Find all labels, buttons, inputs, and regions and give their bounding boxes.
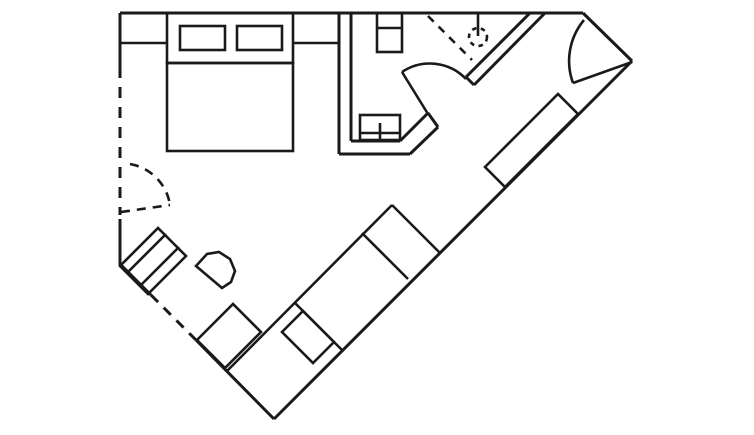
bathroom-door-leaf	[402, 72, 428, 114]
shower-partition-dashed	[428, 16, 472, 60]
closet-door-leaf-dashed	[121, 205, 170, 212]
corridor-wall-end-cap	[466, 77, 474, 85]
pillow-left	[180, 26, 225, 50]
floor-plan-canvas	[0, 0, 754, 435]
sideboard-divider-2	[362, 233, 408, 279]
bed	[167, 63, 293, 151]
closet-door-swing-arc-dashed	[130, 164, 170, 205]
bathroom-wall-end-cap	[428, 113, 438, 127]
sideboard-end-cap	[392, 205, 440, 253]
corridor-wall-inner	[474, 13, 545, 85]
pillow-right	[237, 26, 282, 50]
southwest-wall-dashed-opening	[151, 295, 196, 340]
desk	[197, 304, 261, 368]
entry-corner-wall	[583, 13, 632, 61]
chair	[196, 252, 235, 288]
ottoman-table	[282, 311, 334, 363]
wardrobe-console	[485, 94, 578, 187]
entry-door-leaf	[573, 62, 632, 83]
toilet	[377, 13, 402, 52]
bathroom-door-swing-arc	[402, 64, 466, 79]
luggage-rack	[120, 228, 186, 294]
floor-plan-page	[0, 0, 754, 435]
bed-headboard	[167, 13, 293, 63]
entry-door-swing-arc	[569, 20, 584, 83]
sideboard-front-edge	[226, 205, 392, 372]
bathroom-inner-wall-chamfer	[400, 113, 428, 141]
bathroom-outer-wall-chamfer	[410, 127, 438, 154]
corridor-wall-outer	[466, 13, 530, 77]
